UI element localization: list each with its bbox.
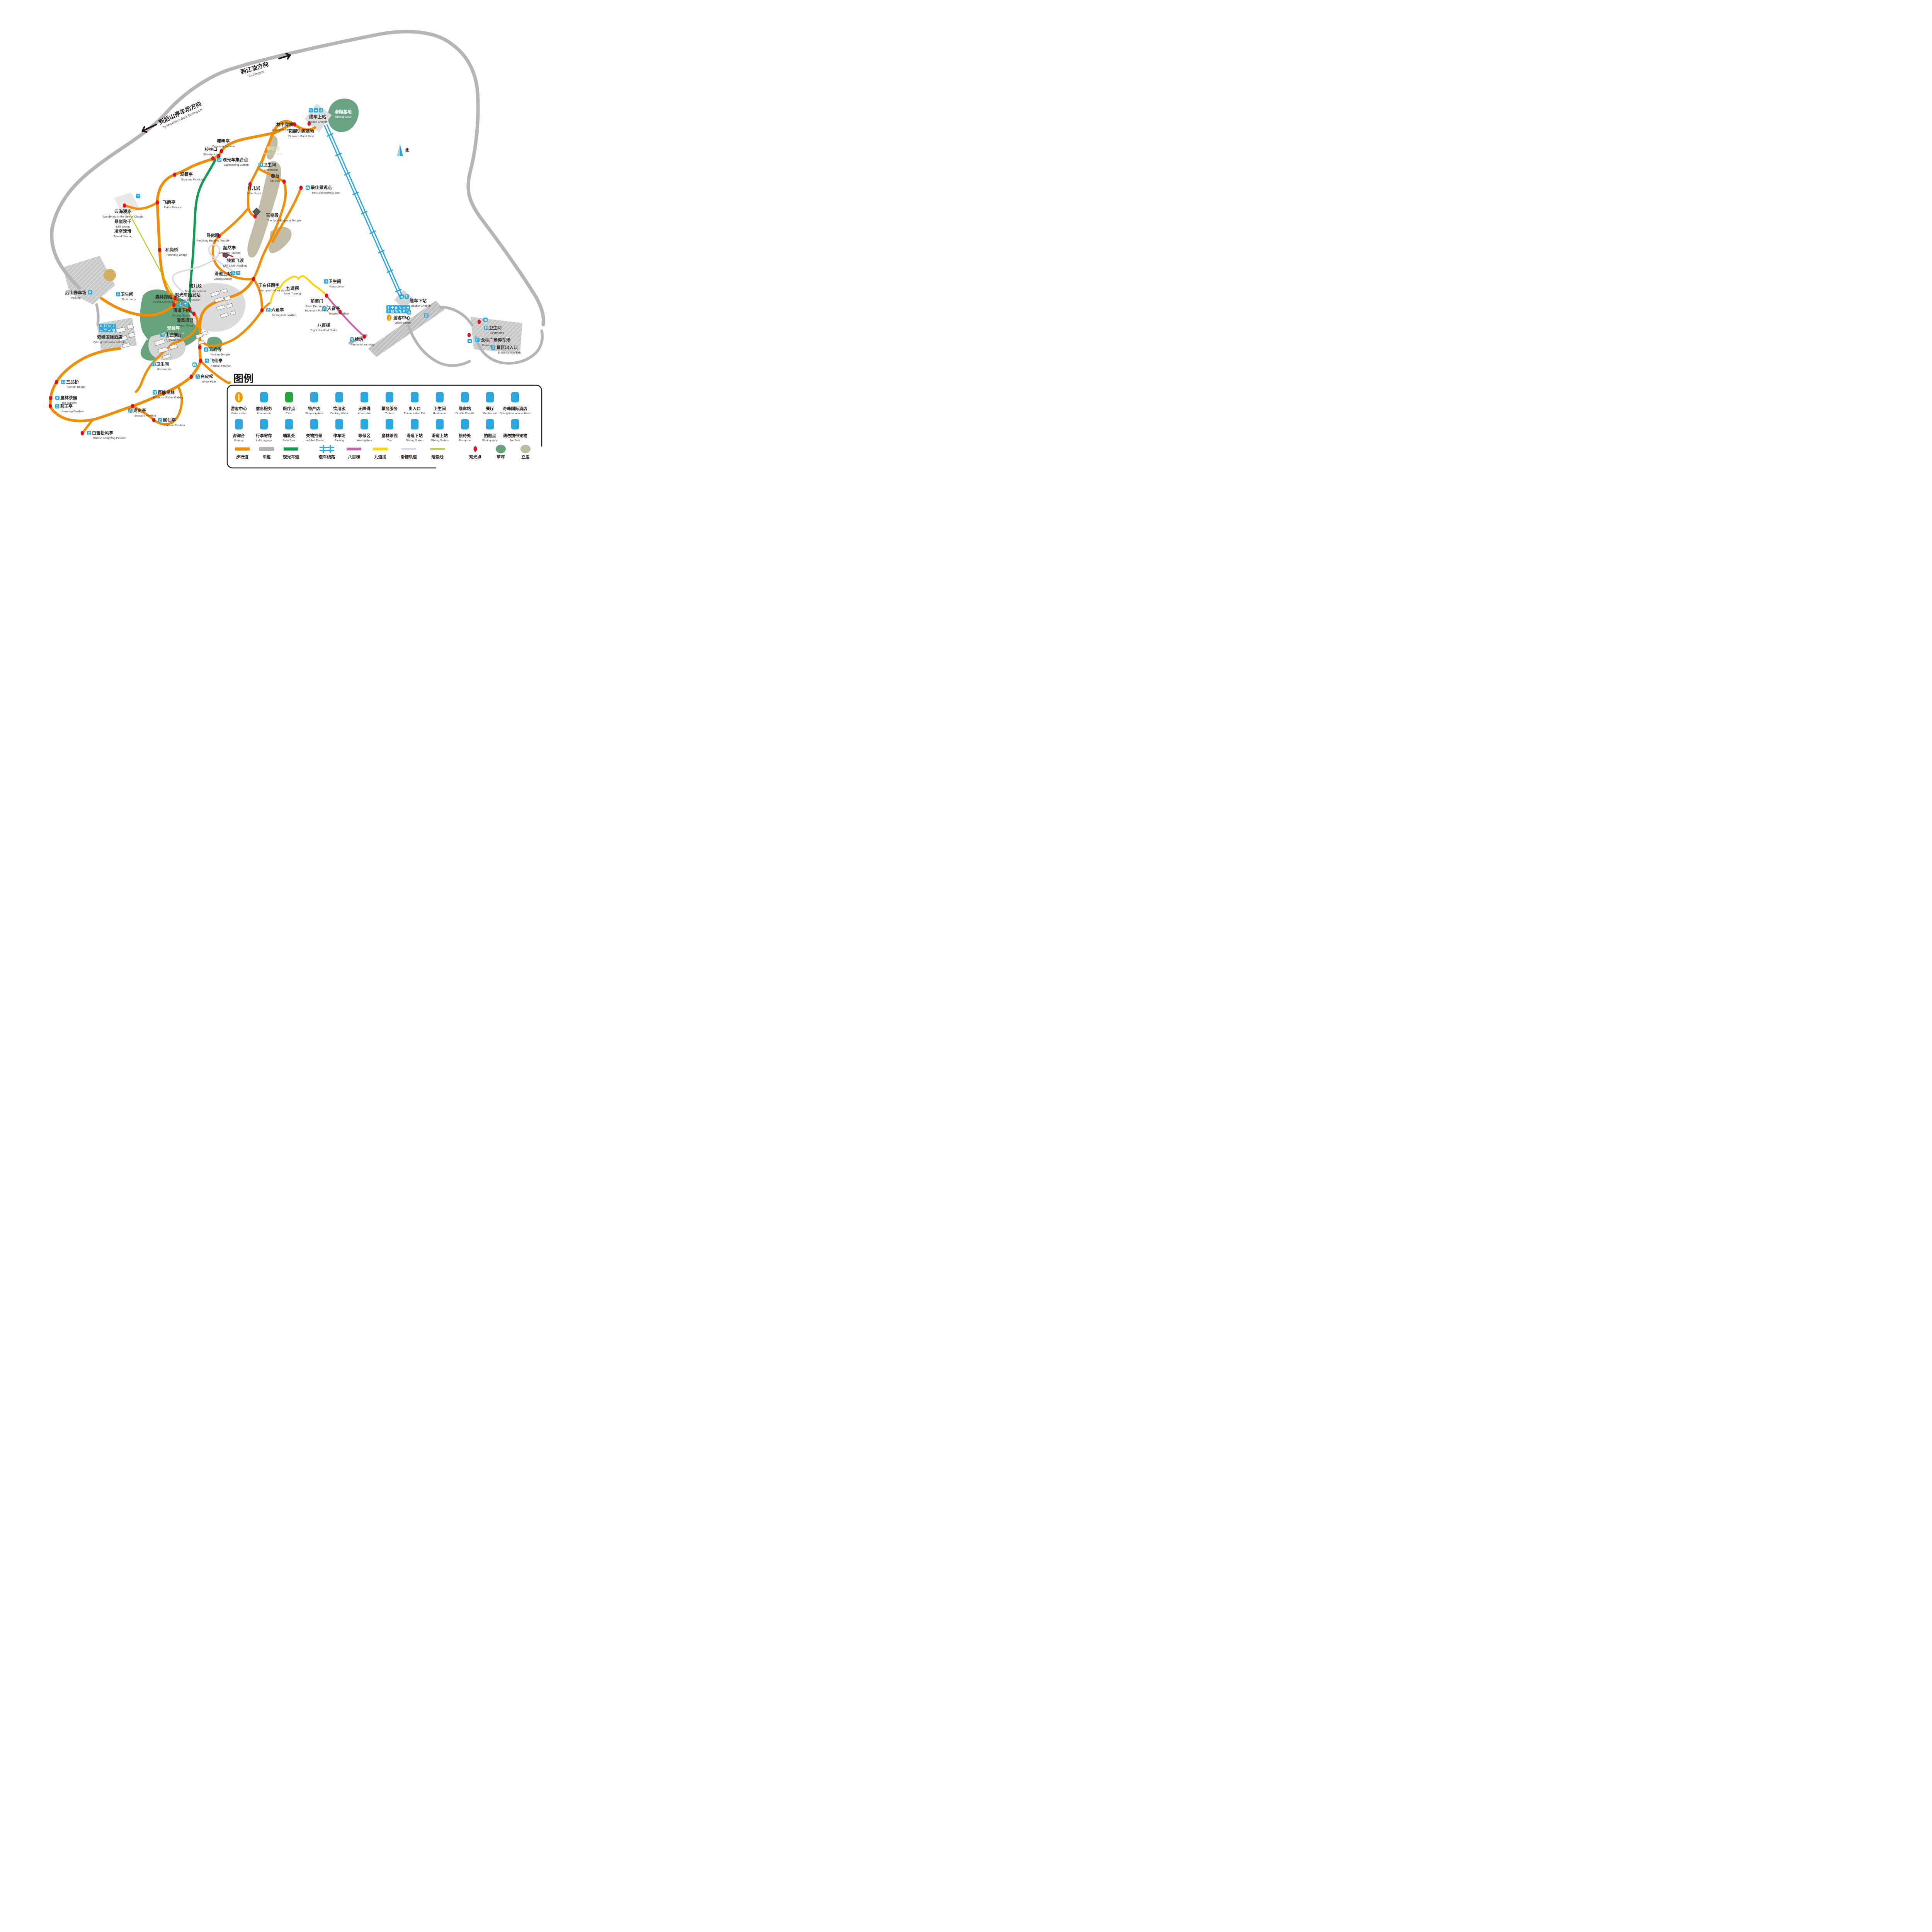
pavilion-icon (205, 359, 209, 363)
question-icon (386, 309, 391, 313)
legend-label: 停车场 (333, 433, 345, 438)
legend-sublabel: Gliding Station (431, 439, 449, 442)
poi-restroom-nineturn (324, 279, 328, 284)
legend-line-label: 立崖 (522, 454, 530, 459)
tea-icon (55, 396, 60, 400)
poi-dot-sightseeing-meet (211, 156, 215, 160)
poi-sublabel-shanlinkou: Shanlin Kou (203, 153, 219, 156)
poi-sublabel-restaurant: Restaurant (167, 338, 181, 342)
legend-line-车道 (259, 447, 274, 451)
parking-icon (402, 309, 406, 313)
poi-label-restroom-top: 卫生间 (263, 162, 276, 167)
legend-sublabel: Drinking Water (330, 412, 349, 415)
ski-up-icon (231, 271, 235, 275)
poi-label-cliff-swing: 悬崖秋千 (114, 219, 131, 224)
poi-sublabel-gliding-base: Gliding Base (335, 115, 352, 119)
legend-line-label: 观光点 (469, 454, 481, 459)
poi-label-best-spot: 最佳景观点 (311, 185, 332, 190)
poi-label-sightseeing-start: 观光车始发站 (175, 292, 201, 298)
ticket-icon (468, 339, 472, 343)
legend-title: 图例 (233, 373, 253, 384)
poi-sublabel-reclining-buddha: Reclining Buddha Temple (197, 239, 230, 242)
legend-label: 奇峰国际酒店 (503, 406, 527, 411)
poi-sublabel-tianyin-pavilion: Tianyin Pavilion (328, 312, 349, 315)
poi-label-hexagonal-pavilion: 六角亭 (271, 307, 284, 313)
legend-line-label: 九道拐 (374, 454, 386, 459)
poi-label-rock-climbing: 攀岩场 (267, 146, 280, 151)
info-icon (386, 305, 391, 310)
poi-sublabel-restroom-rightroad: Restrooms (490, 331, 504, 335)
area-roundabout-circle (104, 269, 116, 281)
legend-sublabel: Entrance And Exit (404, 412, 425, 415)
poi-sublabel-gliding-upper-station: Gliding Station (214, 277, 233, 281)
poi-dot-songshi-pavilion (131, 404, 134, 408)
poi-label-back-parking: 后山停车场 (65, 290, 87, 295)
poi-label-sea-of-clouds: 云海漫步 (114, 209, 131, 214)
poi-dot-heshang-bridge (158, 248, 162, 252)
poi-front-entrance-fortress (325, 293, 328, 298)
legend-label: 票务服务 (381, 406, 398, 411)
poi-label-restroom-hotel-south: 卫生间 (156, 361, 169, 367)
poi-exit-strip (424, 313, 429, 318)
restroom-icon (116, 292, 120, 296)
poi-label-gliding-base: 滑翔基地 (335, 109, 352, 114)
reception-icon (107, 324, 112, 328)
poi-dot-daer-rock (248, 182, 252, 186)
poi-restroom-rightroad (484, 326, 488, 330)
poi-sublabel-restroom-top: Restrooms (264, 168, 279, 172)
legend-sublabel: Accessible (358, 412, 371, 415)
poi-entrance-exit (491, 345, 495, 350)
legend-label: 皇林茶园 (381, 433, 398, 438)
poi-sublabel-front-entrance-fortress: Front Entrance of (306, 304, 328, 308)
poi-dot-white-pine (190, 374, 193, 379)
icon-grid-visitor-services (386, 305, 410, 313)
poi-sublabel-best-spot: Best Sightseeing Spot (312, 191, 341, 194)
archway-icon (350, 337, 354, 342)
map-canvas: ?Psymbol *{fill:#FFFFFF;stroke:none}symb… (0, 0, 603, 484)
kite-icon (236, 271, 240, 275)
route-road-visitor-loop (409, 327, 469, 366)
legend-label: 出入口 (408, 406, 421, 411)
poi-label-junwang-pavilion: 君王亭 (60, 403, 73, 409)
legend-sublabel: Left Luggage (256, 439, 272, 442)
poi-feihe-pavilion (156, 200, 159, 204)
cross-icon (390, 305, 395, 310)
pavilion-icon (266, 308, 270, 312)
legend-row1-info-icon (235, 392, 243, 403)
legend-sublabel: No Pets (510, 439, 520, 442)
poi-sublabel-sightseeing-meet: Sightseeing Station (224, 163, 249, 167)
legend-label: 哺乳处 (283, 433, 295, 438)
bridge-icon (61, 380, 65, 384)
poi-label-yunyan-temple: 云岩寺 (209, 347, 222, 352)
poi-sublabel-shuttle-forest: Shuttle in the Forest (272, 128, 298, 131)
poi-sublabel-speed-skating: Speed Skating (114, 235, 133, 238)
lostfound-icon (398, 309, 402, 313)
ticket-icon (406, 305, 410, 310)
route-trail-to-daer (250, 168, 258, 184)
poi-label-huixian-pavilion: 回仙亭 (163, 417, 176, 423)
poi-sublabel-entrance-exit: Entrance And Exit (498, 351, 521, 354)
legend-line-八百梯 (347, 448, 361, 451)
route-cable-line (325, 125, 403, 299)
poi-label-speed-skating: 凌空速滑 (114, 228, 131, 234)
north-compass: 北 (397, 144, 409, 156)
legend-sublabel: Restaurant (483, 412, 497, 415)
luggage-icon (112, 328, 116, 332)
poi-sublabel-feihe-pavilion: Feihe Pavilion (164, 206, 182, 209)
ticket-icon (314, 108, 318, 112)
poi-sublabel-white-pine: White Pine (202, 380, 216, 383)
legend-line-label: 八百梯 (347, 454, 360, 459)
legend: 图例游客中心Visitor center信息服务Information医疗点Cl… (227, 373, 603, 484)
pavilion-icon (87, 431, 91, 435)
legend-sublabel: Baby Care (282, 439, 295, 442)
poi-dot-chuntai (282, 179, 286, 184)
legend-label: 饮用水 (333, 406, 345, 411)
poi-sublabel-back-parking: Parking (71, 296, 80, 299)
poi-guanwu-pavilion (173, 172, 177, 177)
kite-icon (183, 302, 187, 306)
legend-sublabel: Shopping Area (305, 412, 323, 415)
poi-label-restroom-nineturn: 卫生间 (328, 279, 341, 284)
route-road-strip-to-lot (440, 307, 472, 325)
poi-baixue-songfeng (81, 431, 91, 435)
poi-label-tianyin-pavilion: 天音亭 (327, 306, 340, 311)
legend-label: 滑道下站 (406, 433, 423, 438)
poi-feixian-pavilion (199, 359, 209, 363)
legend-label: 缆车站 (459, 406, 471, 411)
poi-dot-huixian-pavilion (152, 418, 156, 422)
poi-sublabel-huixian-pavilion: Huixian Pavilion (164, 423, 185, 427)
poi-sublabel-nine-turning: Nine Turning (284, 292, 301, 295)
poi-label-feihe-pavilion: 飞鹤亭 (163, 199, 175, 205)
camera-icon (192, 362, 197, 367)
poi-sublabel-gliding-lower-station: Gliding Station (172, 314, 191, 317)
poi-label-gliding-lower-station: 滑道下站 (173, 308, 190, 313)
poi-dot-ticket-roadside-a (478, 320, 481, 324)
poi-sublabel-cliff-chain-walking: Cliff Chain Walking (223, 264, 248, 267)
poi-dot-sanpin-bridge (55, 380, 58, 384)
poi-sublabel-qifeng-hotel: Qifeng International Hotel (93, 340, 126, 344)
poi-label-entrance-exit: 景区出入口 (496, 345, 518, 350)
chairlift-icon (309, 108, 313, 112)
cable-rail-1 (327, 125, 403, 298)
legend-line-label: 缆车线路 (319, 454, 335, 459)
poi-white-pine (190, 374, 200, 379)
exit-icon (491, 345, 495, 350)
ticket-icon (483, 318, 488, 322)
legend-sublabel: Visitor center (231, 412, 247, 415)
poi-label-qifeng-hotel: 奇峰国际酒店 (97, 334, 122, 340)
legend-sublabel: Tea (387, 439, 391, 442)
poi-sublabel-sanpin-bridge: Sanpin Bridge (67, 385, 85, 389)
info-icon (112, 324, 116, 328)
north-label: 北 (405, 147, 409, 153)
poi-dot-yunyan-temple (198, 345, 202, 349)
legend-line-label: 步行道 (236, 454, 248, 459)
legend-sublabel: Gliding Station (406, 439, 423, 442)
legend-sublabel: Waiting Area (357, 439, 372, 442)
restroom-icon (319, 108, 323, 112)
poi-sublabel-daer-rock: Da'er Rock (247, 192, 261, 195)
poi-dot-junwang-pavilion (49, 404, 52, 408)
north-arrow-right-icon (400, 144, 403, 156)
legend-label: 餐厅 (486, 406, 495, 411)
poi-daer-rock (248, 182, 252, 186)
legend-line-label: 草坪 (497, 454, 505, 459)
poi-dot-ticket-roadside-b (468, 333, 471, 337)
luggage-icon (390, 309, 395, 313)
poi-label-songshi-pavilion: 送史亭 (133, 408, 146, 413)
parking-icon (88, 290, 92, 294)
restroom-icon (484, 326, 488, 330)
parking-icon (475, 338, 480, 342)
poi-sublabel-songshi-pavilion: Songshi Pavilion (134, 414, 156, 417)
poi-tea-garden (49, 396, 60, 400)
legend-label: 等候区 (358, 433, 371, 438)
legend-line-滑槽轨道 (401, 448, 416, 450)
poi-sublabel-outward-bund-base: Outward-Bund Base (288, 134, 315, 138)
legend-sublabel: Information (257, 412, 270, 415)
legend-line-观光点 (474, 446, 477, 452)
poi-restroom-top (259, 163, 263, 167)
poi-yingming-pavilion (220, 149, 223, 153)
poi-label-sightseeing-meet: 观光车集合点 (223, 157, 248, 162)
legend-label: 滑道上站 (432, 433, 448, 438)
north-arrow-left-icon (397, 144, 400, 156)
poi-chuntai (282, 179, 286, 184)
poi-label-tea-garden: 皇林茶园 (60, 395, 77, 400)
poi-sublabel-eight-hundred-stairs: Eight Hundred Stairs (310, 328, 337, 332)
poi-sublabel-hexagonal-pavilion: hexagonal pavilion (272, 313, 296, 317)
legend-sublabel: Tickets (385, 412, 394, 415)
poi-label-grass-skiing: 滑草项目 (177, 318, 194, 323)
legend-line-草坪 (496, 445, 506, 453)
poi-sublabel-restroom-hotel-south: Restrooms (157, 367, 172, 371)
poi-dot-hexagonal-pavilion (260, 308, 264, 312)
camera-icon (306, 185, 310, 190)
kite-icon (136, 194, 140, 198)
poi-label-longzhu-parking: 龙柱广场停车场 (480, 337, 510, 343)
poi-sublabel-restroom-backlot: Restrooms (122, 298, 136, 301)
legend-sublabel: Enquiry (234, 439, 243, 442)
poi-longzhu-parking (475, 338, 480, 342)
poi-sublabel-chairlift-upper: Double Chairlift (308, 120, 328, 124)
legend-label: 信息服务 (256, 406, 272, 411)
legend-line-立崖 (520, 445, 531, 453)
route-road-lot-link (97, 304, 98, 325)
chairlift-icon (405, 294, 409, 299)
poi-back-parking (88, 290, 92, 294)
poi-sublabel-junwang-pavilion: Junwang Pavilion (61, 410, 83, 413)
route-trail-buddha (213, 208, 253, 279)
temple-icon (204, 347, 208, 352)
poi-sublabel-longzhu-parking: Parking (482, 344, 492, 347)
poi-dot-baixue-songfeng (81, 431, 84, 435)
poi-sublabel-jade-emperor-temple: The Jade Emperor Temple (267, 219, 301, 222)
poi-sublabel-rock-climbing: Rock Climbing (264, 152, 282, 155)
poi-label-visitor-center: 游客中心 (393, 315, 410, 320)
poi-label-restroom-rightroad: 卫生间 (489, 325, 502, 330)
legend-sublabel: Photography (482, 439, 498, 442)
poi-sublabel-memorial-archway: Memorial archway (351, 343, 374, 346)
poi-label-sanpin-bridge: 三品桥 (66, 379, 79, 384)
legend-label: 拍照点 (484, 433, 496, 438)
poi-restroom-backlot (116, 292, 120, 296)
poi-label-eight-hundred-stairs: 八百梯 (317, 322, 330, 328)
poi-label-gliding-upper-station: 滑道上站 (214, 271, 231, 276)
poi-dot-gliding-lower-station (192, 311, 196, 316)
legend-label: 无障碍 (358, 406, 371, 411)
restroom-icon (259, 163, 263, 167)
poi-label-cliff-chain-walking: 铁索飞渡 (227, 258, 244, 263)
poi-ticket-roadside-b (468, 333, 472, 343)
poi-sublabel-baixue-songfeng: Baixue Songfeng Pavilion (93, 436, 126, 440)
poi-label-nine-turning: 九道拐 (286, 286, 299, 291)
poi-dot-tea-garden (49, 396, 53, 400)
poi-sublabel-feixian-pavilion: Feixian Pavilion (211, 364, 231, 367)
pavilion-icon (128, 408, 133, 413)
nopets-icon (107, 328, 112, 332)
legend-sublabel: Double Chairlift (456, 412, 474, 415)
bus-icon (217, 158, 221, 162)
poi-chairlift-upper (309, 108, 323, 112)
poi-dot-gliding-upper-station (252, 277, 255, 281)
poi-label-shuttle-forest: 林中穿梭 (276, 122, 294, 127)
area-cliff-arm (269, 227, 291, 253)
poi-label-reclining-buddha: 卧佛殿 (207, 233, 220, 238)
legend-label: 卫生间 (434, 406, 446, 411)
direction-to-jiangyou: 到江油方向To Jiangyou (239, 53, 293, 80)
legend-line-观光车道 (284, 447, 298, 451)
wheelchair-icon (402, 305, 406, 310)
poi-label-restroom-backlot: 卫生间 (121, 291, 133, 297)
poi-label-chairlift-upper: 缆车上站 (309, 114, 326, 119)
poi-label-memorial-archway: 牌坊 (355, 337, 363, 342)
poi-label-guanfeng-lawn: 观峰坪 (167, 325, 180, 331)
poi-dot-front-entrance-fortress (325, 293, 328, 298)
poi-sublabel-emperor-statue-gallery: Emperor Statue Gallery (153, 396, 184, 399)
legend-sublabel: Lost And Found (304, 439, 323, 442)
legend-line-label: 溜索线 (431, 454, 444, 459)
legend-sublabel: Clinic (286, 412, 293, 415)
legend-label: 接待处 (459, 433, 471, 438)
poi-sublabel-heshang-bridge: Heshang Bridge (167, 253, 187, 257)
legend-label: 行李寄存 (255, 433, 272, 438)
poi-label-chairlift-lower: 缆车下站 (410, 298, 427, 303)
legend-sublabel: Reception (459, 439, 471, 442)
poi-best-spot (299, 185, 310, 190)
poi-sublabel-yunyan-temple: Yunyan Temple (210, 353, 230, 356)
poi-dot-best-spot (299, 185, 303, 190)
layer-labels: 缆车上站Double Chairlift滑翔基地Gliding Base拓展训练… (60, 53, 521, 440)
poi-label-baixue-songfeng: 白雪松风亭 (92, 430, 113, 435)
legend-label: 特产店 (308, 406, 320, 411)
poi-label-guanwu-pavilion: 观雾亭 (180, 172, 193, 177)
ticket-icon (400, 294, 404, 299)
bed-icon (99, 328, 103, 332)
poi-label-feixian-pavilion: 飞仙亭 (210, 358, 223, 363)
poi-sublabel-visitor-center: Visitor center (395, 321, 412, 325)
legend-line-溜索线 (430, 448, 445, 450)
legend-sublabel: Qifeng International Hotel (500, 412, 531, 415)
poi-dot-pad-spot (123, 203, 126, 207)
poi-visitor-center (387, 315, 391, 321)
legend-line-步行道 (235, 447, 250, 451)
legend-label: 游客中心 (231, 406, 247, 411)
scenic-area-map: ?Psymbol *{fill:#FFFFFF;stroke:none}symb… (0, 0, 603, 484)
legend-line-label: 车道 (263, 454, 271, 459)
building (202, 331, 208, 335)
poi-label-yuyouren: 于右任题字 (258, 282, 279, 288)
bag-icon (394, 305, 398, 310)
pavilion-icon (196, 374, 200, 379)
poi-dot-yingming-pavilion (220, 149, 223, 153)
pavilion-icon (55, 404, 59, 408)
poi-sublabel-chaoran-pavilion: Chaoran Pavilion (218, 251, 240, 255)
poi-heshang-bridge (158, 248, 162, 252)
exit-icon (424, 313, 429, 318)
legend-line-九道拐 (373, 448, 388, 451)
parking-icon (99, 324, 103, 328)
poi-restroom-hotel-south (151, 362, 156, 366)
poi-sublabel-taer-mausoleum: Ta'er Mausoleum (185, 289, 207, 293)
poi-label-heshang-bridge: 和尚桥 (165, 247, 179, 252)
ski-down-icon (178, 302, 182, 306)
legend-sublabel: Restrooms (433, 412, 446, 415)
pavilion-icon (158, 418, 162, 422)
legend-line-label: 滑槽轨道 (401, 454, 417, 459)
poi-label-jade-emperor-temple: 玉皇殿 (266, 213, 279, 218)
poi-restroom-strip (407, 310, 411, 315)
restroom-icon (324, 279, 328, 284)
poi-sublabel-forest-adventure: Forest Adventure (153, 300, 175, 304)
legend-label: 咨询台 (233, 433, 245, 438)
poi-label-front-entrance-fortress: 前寨门 (311, 298, 323, 304)
poi-label-taer-mausoleum: 塔儿坟 (189, 283, 202, 289)
legend-line-label: 观光车道 (283, 454, 299, 459)
baby-icon (394, 309, 398, 313)
legend-sublabel: Parking (335, 439, 344, 442)
restroom-icon (151, 362, 156, 366)
poi-dot-feixian-pavilion (199, 359, 202, 363)
poi-label-yingming-pavilion: 嘤明亭 (217, 138, 230, 144)
legend-label: 请勿携带宠物 (503, 433, 527, 438)
legend-label: 医疗点 (283, 406, 295, 411)
poi-label-daer-rock: 打儿岩 (248, 185, 260, 191)
poi-sublabel-restroom-nineturn: Restrooms (330, 285, 344, 288)
poi-label-white-pine: 白皮松 (201, 374, 213, 379)
poi-label-chaoran-pavilion: 超然亭 (223, 245, 236, 250)
poi-dot-guanwu-pavilion (173, 172, 177, 177)
cable-rail-0 (325, 126, 401, 299)
poi-sanpin-bridge (55, 380, 65, 384)
poi-junwang-pavilion (49, 404, 59, 408)
poi-hexagonal-pavilion (260, 308, 270, 313)
poi-label-shanlinkou: 杉林口 (205, 146, 218, 152)
restaurant-icon (103, 328, 107, 332)
poi-label-restaurant: 山庄餐厅 (165, 332, 182, 337)
poi-label-emperor-statue-gallery: 百味皇林 (158, 389, 175, 395)
poi-sublabel-sightseeing-start: Sightseeing Station (175, 298, 201, 302)
poi-label-forest-adventure: 森林探险 (155, 294, 173, 299)
archway-icon (153, 390, 157, 395)
poi-label-chuntai: 春台 (271, 173, 279, 179)
poi-sublabel-sea-of-clouds: Wondering in the Sea of Clouds (102, 215, 143, 218)
water-icon (398, 305, 402, 310)
